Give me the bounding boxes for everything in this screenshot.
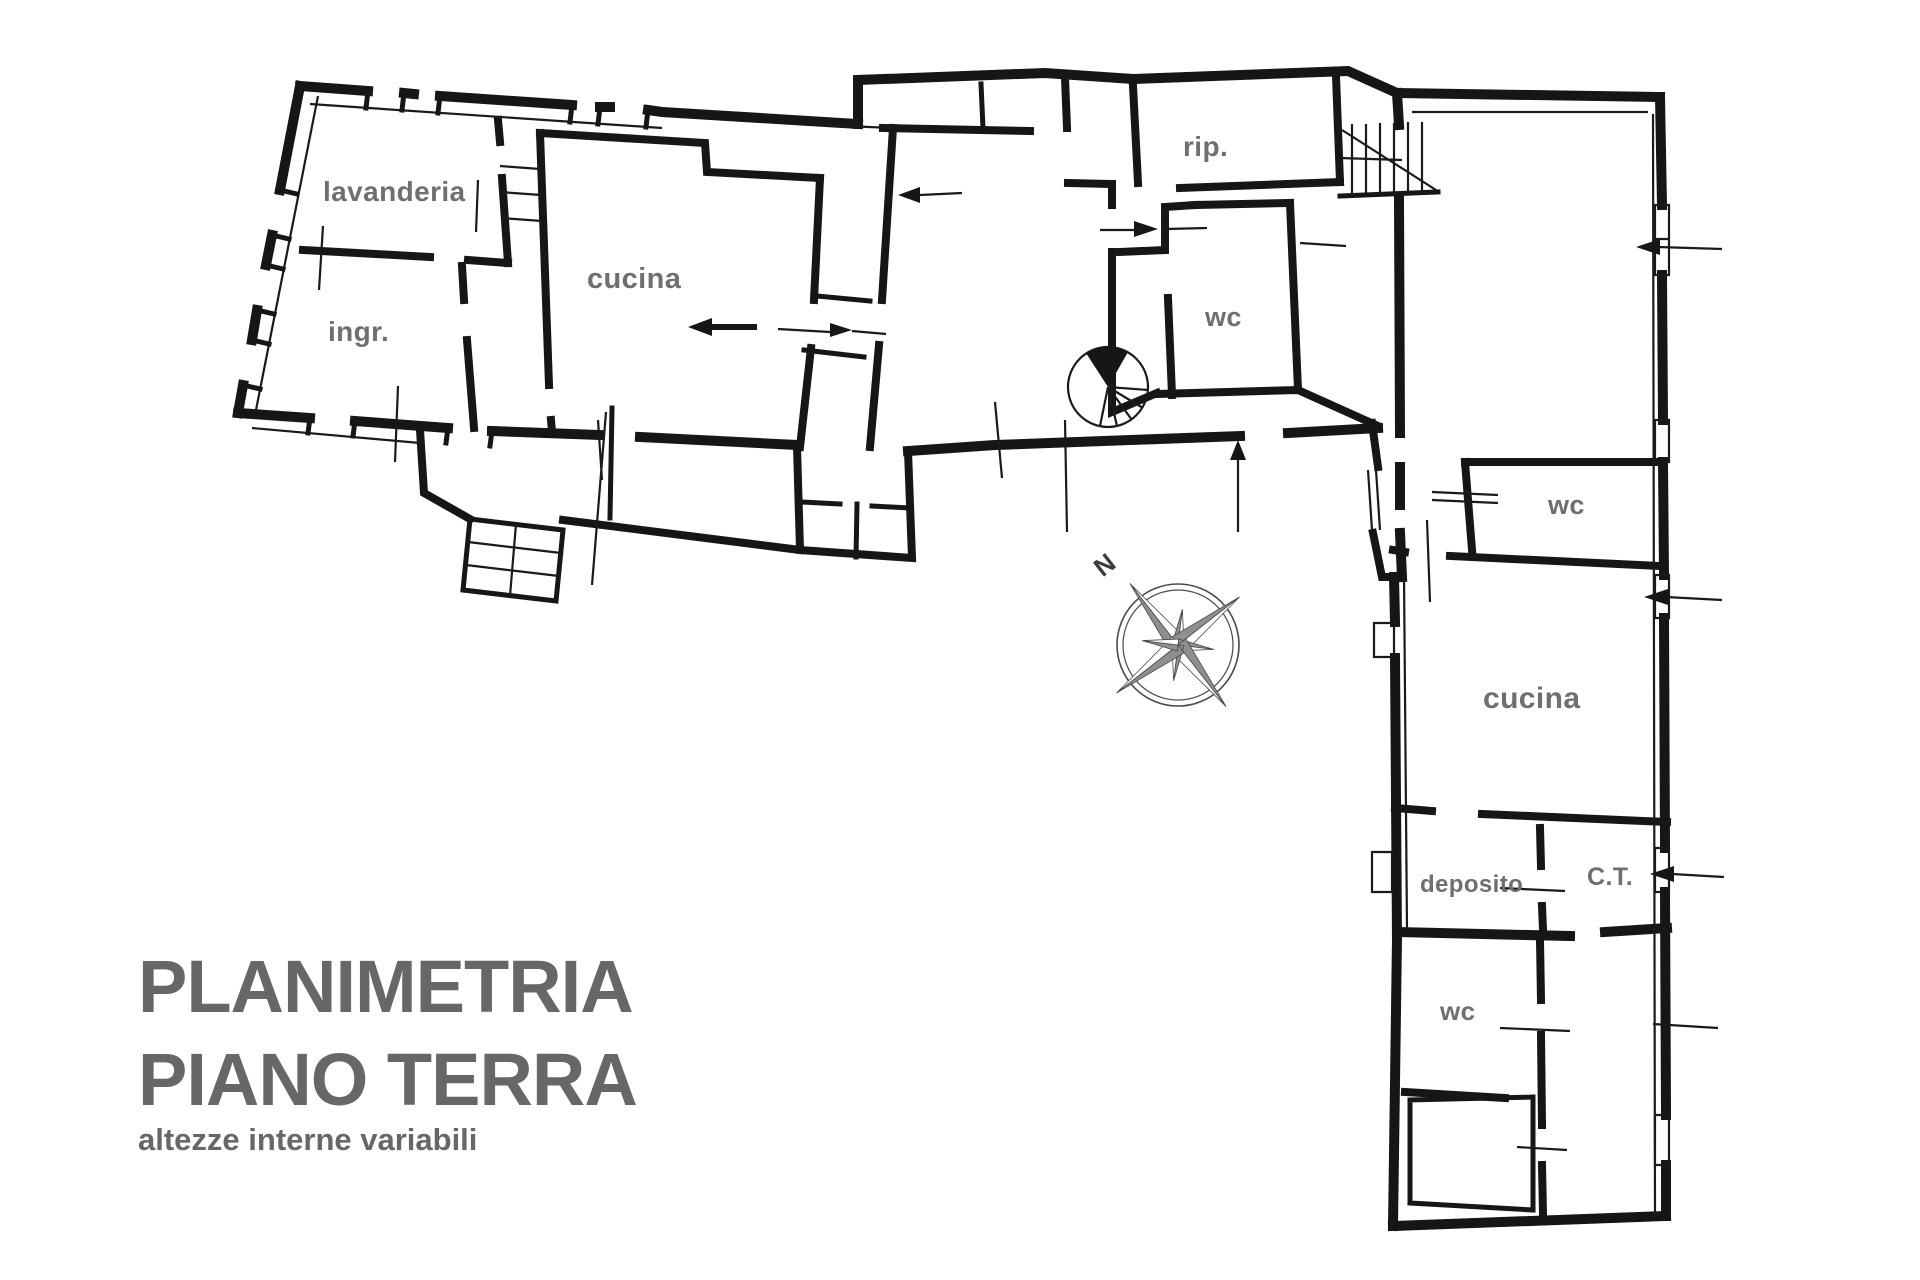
door-arrow-hall-bottom	[1230, 440, 1246, 460]
plan-subtitle: altezze interne variabili	[138, 1124, 477, 1155]
room-label-wc-bottom: wc	[1440, 996, 1475, 1027]
plan-title-line1: PLANIMETRIA	[138, 950, 633, 1024]
spiral-stair-wedge	[1086, 347, 1128, 387]
room-label-ct: C.T.	[1587, 863, 1633, 892]
room-label-wc-center: wc	[1205, 302, 1242, 333]
room-label-cucina-left: cucina	[587, 263, 681, 296]
entrance-arrow-cucina-left	[688, 318, 757, 336]
solid-arrows	[688, 187, 1674, 882]
room-label-wc-wing: wc	[1548, 490, 1585, 521]
room-label-rip: rip.	[1183, 131, 1228, 163]
room-label-cucina-wing: cucina	[1483, 682, 1580, 716]
door-arrow-vestibule	[830, 323, 852, 337]
compass-north-label: N	[1088, 547, 1121, 582]
door-arrow-hall-left	[898, 187, 920, 203]
floor-plan-page: N lavanderiaingr.cucinarip.wcwccucinadep…	[0, 0, 1920, 1280]
room-label-lavanderia: lavanderia	[323, 176, 466, 208]
entrance-arrow-east-top	[1636, 239, 1660, 255]
compass-rose: N	[1069, 536, 1288, 755]
door-arrow-hall	[1134, 221, 1158, 237]
room-label-ingr: ingr.	[328, 316, 389, 348]
plan-title-line2: PIANO TERRA	[138, 1043, 637, 1117]
room-label-deposito: deposito	[1420, 871, 1523, 899]
